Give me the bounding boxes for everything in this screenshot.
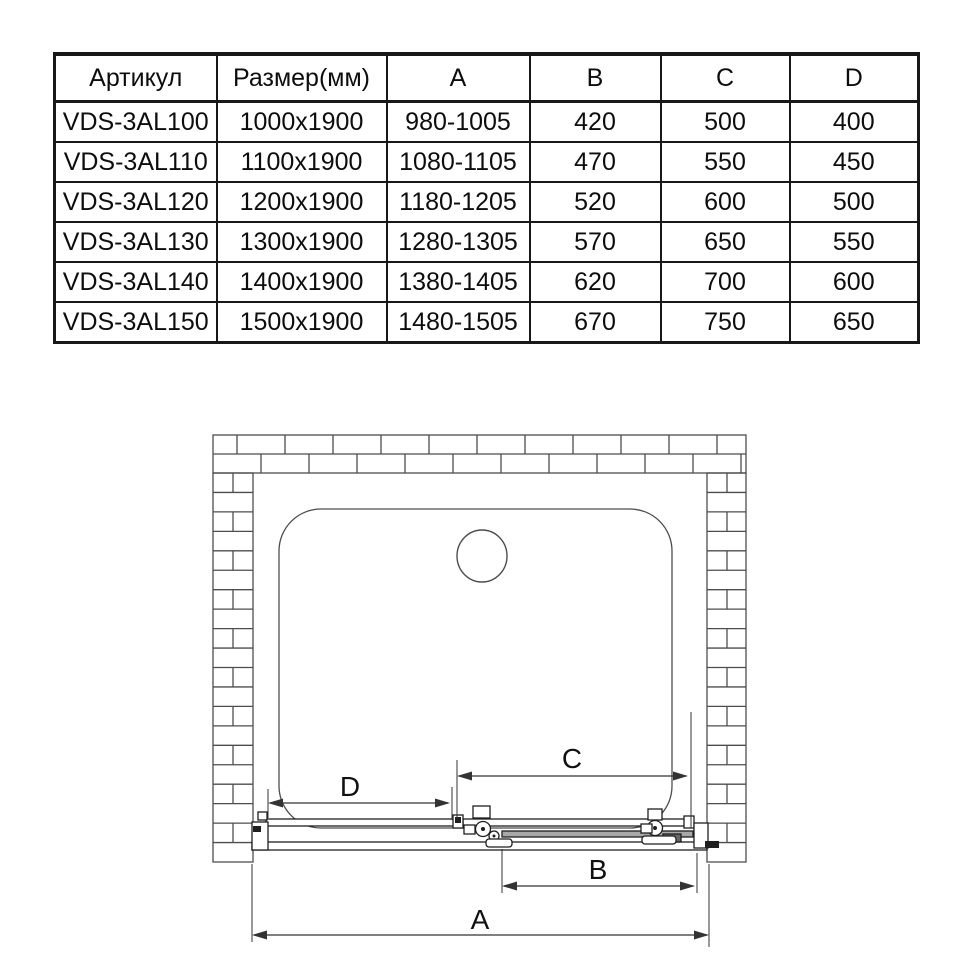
value-cell: 450: [790, 142, 919, 182]
column-header-5: D: [790, 54, 919, 102]
article-cell: VDS-3AL110: [55, 142, 217, 182]
arrowhead-icon: [680, 882, 695, 891]
drain-circle: [457, 530, 507, 582]
column-header-3: B: [530, 54, 661, 102]
column-header-4: C: [661, 54, 790, 102]
article-cell: VDS-3AL130: [55, 222, 217, 262]
value-cell: 550: [790, 222, 919, 262]
brick-wall: [213, 435, 746, 862]
column-header-1: Размер(мм): [217, 54, 387, 102]
table-row: VDS-3AL1101100x19001080-1105470550450: [55, 142, 919, 182]
column-header-0: Артикул: [55, 54, 217, 102]
value-cell: 750: [661, 302, 790, 343]
value-cell: 1280-1305: [387, 222, 530, 262]
article-cell: VDS-3AL140: [55, 262, 217, 302]
shower-tray: [279, 509, 672, 828]
value-cell: 500: [661, 102, 790, 143]
value-cell: 620: [530, 262, 661, 302]
arrowhead-icon: [457, 772, 472, 781]
size-table-wrapper: АртикулРазмер(мм)ABCD VDS-3AL1001000x190…: [53, 52, 920, 344]
value-cell: 1100x1900: [217, 142, 387, 182]
value-cell: 1180-1205: [387, 182, 530, 222]
value-cell: 1480-1505: [387, 302, 530, 343]
arrowhead-icon: [252, 931, 267, 940]
arrowhead-icon: [502, 882, 517, 891]
arrowhead-icon: [268, 799, 283, 808]
value-cell: 650: [661, 222, 790, 262]
table-row: VDS-3AL1401400x19001380-1405620700600: [55, 262, 919, 302]
value-cell: 1300x1900: [217, 222, 387, 262]
table-body: VDS-3AL1001000x1900980-1005420500400VDS-…: [55, 102, 919, 343]
value-cell: 1500x1900: [217, 302, 387, 343]
header-row: АртикулРазмер(мм)ABCD: [55, 54, 919, 102]
installation-diagram: CDBA: [0, 420, 970, 970]
value-cell: 500: [790, 182, 919, 222]
value-cell: 1080-1105: [387, 142, 530, 182]
table-header: АртикулРазмер(мм)ABCD: [55, 54, 919, 102]
article-cell: VDS-3AL120: [55, 182, 217, 222]
article-cell: VDS-3AL100: [55, 102, 217, 143]
size-table: АртикулРазмер(мм)ABCD VDS-3AL1001000x190…: [53, 52, 920, 344]
value-cell: 700: [661, 262, 790, 302]
table-row: VDS-3AL1001000x1900980-1005420500400: [55, 102, 919, 143]
value-cell: 980-1005: [387, 102, 530, 143]
dimension-label-B: B: [589, 854, 608, 885]
value-cell: 470: [530, 142, 661, 182]
value-cell: 520: [530, 182, 661, 222]
value-cell: 670: [530, 302, 661, 343]
table-row: VDS-3AL1501500x19001480-1505670750650: [55, 302, 919, 343]
catalog-page: АртикулРазмер(мм)ABCD VDS-3AL1001000x190…: [0, 0, 970, 970]
table-row: VDS-3AL1301300x19001280-1305570650550: [55, 222, 919, 262]
value-cell: 420: [530, 102, 661, 143]
arrowhead-icon: [694, 931, 709, 940]
dimension-label-C: C: [562, 743, 582, 774]
dimension-label-D: D: [340, 771, 360, 802]
table-row: VDS-3AL1201200x19001180-1205520600500: [55, 182, 919, 222]
value-cell: 600: [790, 262, 919, 302]
value-cell: 650: [790, 302, 919, 343]
value-cell: 570: [530, 222, 661, 262]
value-cell: 1400x1900: [217, 262, 387, 302]
column-header-2: A: [387, 54, 530, 102]
value-cell: 550: [661, 142, 790, 182]
value-cell: 600: [661, 182, 790, 222]
value-cell: 1380-1405: [387, 262, 530, 302]
value-cell: 400: [790, 102, 919, 143]
value-cell: 1200x1900: [217, 182, 387, 222]
arrowhead-icon: [435, 799, 450, 808]
arrowhead-icon: [673, 772, 688, 781]
dimension-label-A: A: [471, 904, 490, 935]
article-cell: VDS-3AL150: [55, 302, 217, 343]
value-cell: 1000x1900: [217, 102, 387, 143]
